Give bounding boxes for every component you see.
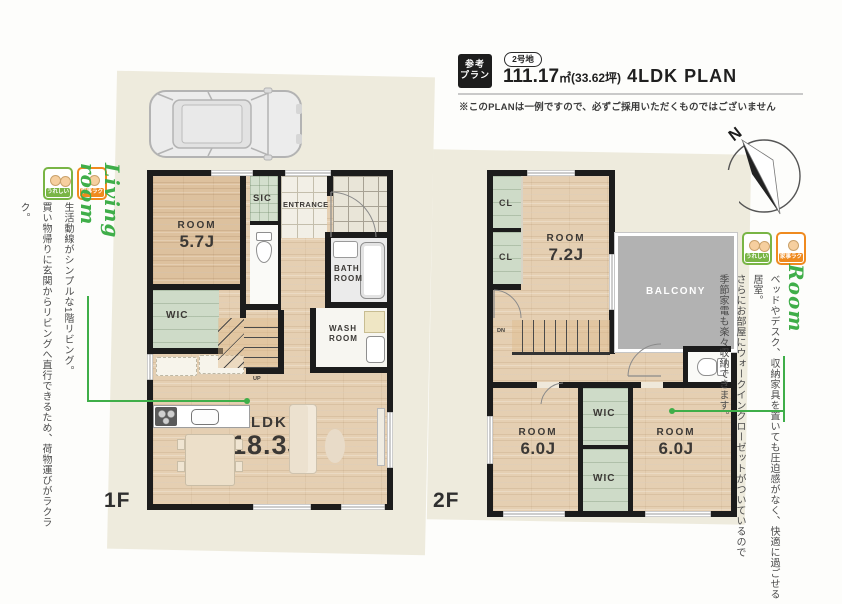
- stair-railing: [512, 352, 610, 355]
- living-room-script-title: Living room: [76, 163, 124, 308]
- living-connector-line-v: [87, 296, 89, 402]
- floorplan-2f: CL CL ROOM 7.2J BALCONY DN ROOM 6.0J WIC…: [487, 170, 737, 517]
- wic-1f-label: WIC: [166, 310, 188, 323]
- living-note-line2: 買い物帰りに玄関からリビングへ直行できるため、荷物運びがラクラク。: [12, 202, 56, 547]
- reference-plan-badge-line2: プラン: [458, 70, 492, 81]
- door-opening: [641, 382, 663, 388]
- plan-area-value: 111.17: [503, 66, 559, 87]
- wall: [240, 176, 246, 318]
- bathroom-washstand: [333, 241, 358, 258]
- lot-number-badge: 2号地: [504, 52, 542, 67]
- rug: [325, 429, 345, 463]
- wall: [628, 388, 633, 511]
- badge-face: [748, 238, 770, 254]
- living-room-note-text: 生活動線がシンプルな1階リビング。 買い物帰りに玄関からリビングへ直行できるため…: [12, 202, 78, 547]
- door-opening: [537, 382, 559, 388]
- living-connector-line-h: [87, 400, 247, 402]
- window: [147, 354, 153, 380]
- window: [253, 504, 311, 510]
- wall: [246, 368, 284, 374]
- kaji-raku-badge-room: 家事ラク: [776, 232, 806, 265]
- vanity-sink: [366, 336, 385, 363]
- floor-tag-1f: 1F: [104, 489, 131, 513]
- room-note-text: ベッドやデスク、収納家具を置いても圧迫感がなく、快適に過ごせる居室。 さらにお部…: [714, 274, 782, 604]
- room-note-line1: ベッドやデスク、収納家具を置いても圧迫感がなく、快適に過ごせる居室。: [748, 274, 782, 604]
- cl2-label: CL: [499, 252, 513, 263]
- wic-2f-a-label: WIC: [593, 408, 615, 421]
- chair: [235, 439, 243, 450]
- floor-mat: [156, 357, 197, 376]
- reference-plan-badge-line1: 参考: [458, 59, 492, 70]
- living-note-line1: 生活動線がシンプルな1階リビング。: [56, 202, 78, 547]
- wall: [325, 232, 387, 238]
- happy-badge-living-label: うれしい: [46, 188, 70, 197]
- plan-type: 4LDK PLAN: [627, 66, 737, 86]
- cl1-label: CL: [499, 198, 513, 209]
- window: [527, 170, 575, 176]
- happy-badge-living: うれしい: [43, 167, 73, 200]
- parked-car: [146, 86, 306, 162]
- wall: [310, 308, 316, 373]
- tv-board: [377, 408, 385, 466]
- sofa: [289, 404, 317, 474]
- wic-2f-b-label: WIC: [593, 473, 615, 486]
- room-note-line2: さらにお部屋にウォークインクローゼットがついているので: [731, 274, 748, 604]
- stairs-1f: [244, 318, 278, 368]
- room-connector-line-h: [672, 410, 784, 412]
- washroom-cabinet: [364, 311, 385, 333]
- window: [503, 511, 565, 517]
- window: [341, 504, 385, 510]
- wall: [278, 310, 284, 374]
- toilet-tank: [256, 232, 272, 241]
- dining-table: [185, 434, 235, 486]
- stove: [155, 407, 177, 426]
- window: [487, 416, 493, 464]
- wall: [246, 304, 281, 310]
- chair: [177, 461, 185, 472]
- closet-door-line: [521, 176, 523, 284]
- entrance-porch: [333, 176, 387, 232]
- happy-badge-room: うれしい: [742, 232, 772, 265]
- plan-notch: [615, 170, 739, 233]
- kitchen-sink: [191, 409, 219, 425]
- room-note-line3: 季節家電も楽々収納できます。: [714, 274, 731, 604]
- stairs-2f: [512, 320, 610, 352]
- stairs-up-label: UP: [253, 376, 261, 383]
- entrance-label: ENTRANCE: [283, 200, 329, 209]
- stairs-dn-label: DN: [497, 328, 505, 335]
- room-6-0j-left-label: ROOM 6.0J: [501, 427, 575, 458]
- badge-face: [782, 238, 804, 254]
- reference-plan-badge: 参考 プラン: [458, 54, 492, 88]
- wall: [278, 225, 281, 304]
- sic-label: SIC: [253, 193, 272, 205]
- window: [387, 412, 393, 468]
- room-script-title: Room: [784, 264, 808, 334]
- bathroom-label: BATH ROOM: [334, 264, 363, 284]
- washroom-label: WASH ROOM: [329, 324, 358, 344]
- car-top-view-icon: [146, 86, 306, 162]
- window: [211, 170, 253, 176]
- badge-face: [49, 173, 71, 189]
- room-6-0j-right-label: ROOM 6.0J: [639, 427, 713, 458]
- plan-title: 111.17㎡(33.62坪)4LDK PLAN: [503, 66, 737, 88]
- wall: [493, 284, 521, 290]
- room-7-2j-label: ROOM 7.2J: [529, 233, 603, 264]
- wall: [153, 348, 223, 354]
- window: [285, 170, 331, 176]
- chair: [235, 461, 243, 472]
- kaji-raku-badge-room-label: 家事ラク: [779, 253, 803, 262]
- living-connector-dot: [244, 398, 250, 404]
- plan-area-unit: ㎡(33.62坪): [559, 71, 621, 85]
- wall: [310, 367, 387, 373]
- room-connector-line-v: [783, 356, 785, 422]
- bathtub: [360, 242, 385, 299]
- ldk-label: LDK: [251, 414, 288, 431]
- flyer-page: { "header": { "ref_badge_line1": "参考", "…: [0, 0, 842, 595]
- floorplan-1f: ROOM 5.7J WIC SIC ENTRANCE BATH ROOM WAS…: [147, 170, 393, 510]
- happy-badge-room-label: うれしい: [745, 253, 769, 262]
- room-5-7j-label: ROOM 5.7J: [159, 220, 235, 251]
- wall: [683, 346, 688, 382]
- floor-tag-2f: 2F: [433, 489, 460, 513]
- header-divider: [458, 93, 803, 95]
- chair: [177, 439, 185, 450]
- wall: [325, 232, 331, 302]
- window: [645, 511, 711, 517]
- stairs-1f-winder: [218, 318, 244, 368]
- plan-disclaimer: ※このPLANは一例ですので、必ずご採用いただくものではございません: [459, 99, 776, 113]
